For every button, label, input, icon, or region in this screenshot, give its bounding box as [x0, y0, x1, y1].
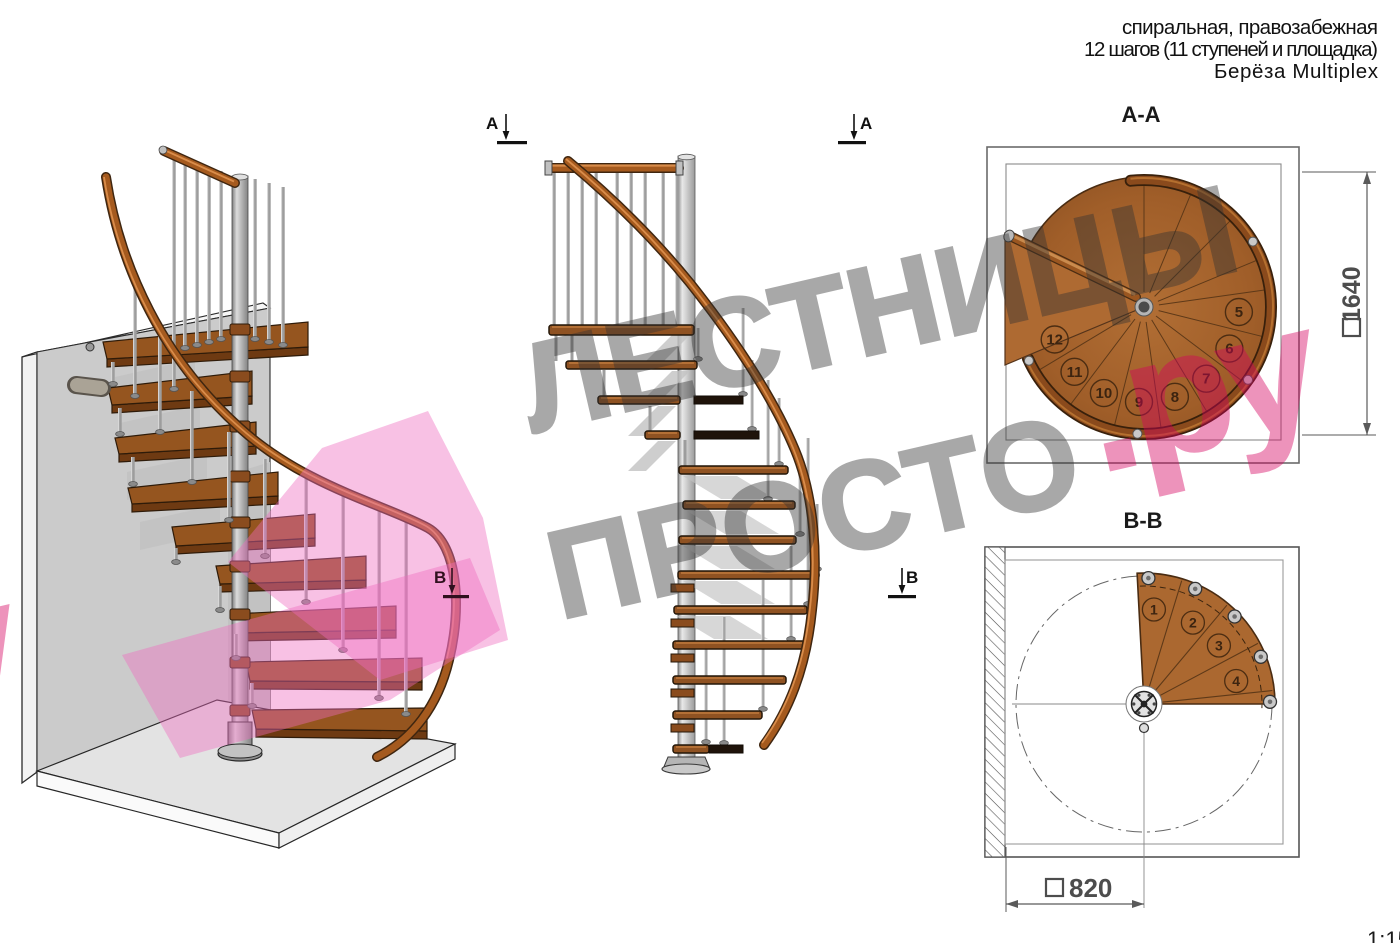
svg-text:1640: 1640: [1338, 266, 1366, 322]
svg-text:1:15: 1:15: [1367, 927, 1400, 943]
svg-text:3: 3: [1215, 638, 1223, 654]
svg-text:A: A: [860, 114, 872, 133]
svg-text:A: A: [486, 114, 498, 133]
svg-text:2: 2: [1189, 615, 1197, 631]
svg-text:спиральная, правозабежная: спиральная, правозабежная: [1122, 16, 1378, 39]
svg-text:Берёза Multiplex: Берёза Multiplex: [1214, 60, 1379, 83]
svg-text:А-А: А-А: [1121, 102, 1160, 127]
svg-text:1: 1: [1150, 602, 1158, 618]
svg-text:В-В: В-В: [1123, 508, 1162, 533]
svg-text:B: B: [906, 568, 918, 587]
svg-text:B: B: [434, 568, 446, 587]
svg-text:4: 4: [1232, 673, 1240, 689]
svg-text:12 шагов (11 ступеней и площад: 12 шагов (11 ступеней и площадка): [1084, 38, 1378, 61]
svg-text:820: 820: [1069, 873, 1112, 903]
